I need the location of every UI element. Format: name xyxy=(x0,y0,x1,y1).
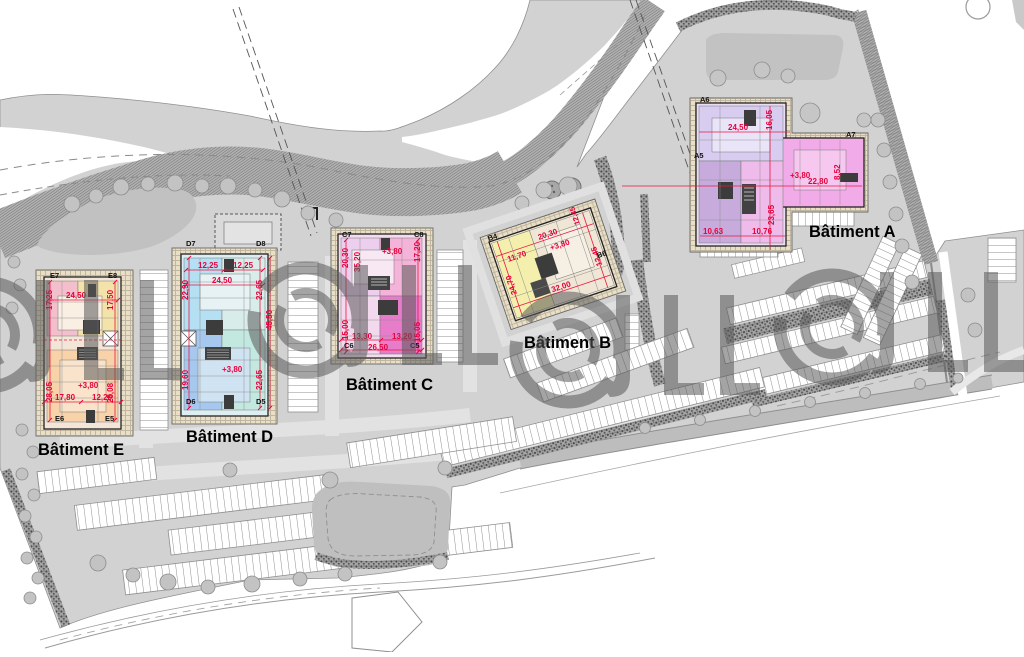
svg-text:+3,80: +3,80 xyxy=(790,171,811,180)
svg-text:D5: D5 xyxy=(256,397,266,406)
svg-text:C7: C7 xyxy=(342,230,352,239)
svg-text:24,50: 24,50 xyxy=(728,123,749,132)
svg-text:24,50: 24,50 xyxy=(212,276,233,285)
svg-text:22,80: 22,80 xyxy=(808,177,829,186)
svg-text:28,05: 28,05 xyxy=(45,381,54,402)
svg-text:22,65: 22,65 xyxy=(255,369,264,390)
svg-text:C8: C8 xyxy=(414,230,424,239)
svg-text:E5: E5 xyxy=(105,414,114,423)
svg-text:8,52: 8,52 xyxy=(833,164,842,180)
svg-text:Bâtiment C: Bâtiment C xyxy=(346,376,433,394)
svg-text:17,50: 17,50 xyxy=(106,289,115,310)
svg-text:24,50: 24,50 xyxy=(66,291,87,300)
svg-text:E8: E8 xyxy=(108,271,117,280)
svg-text:20,30: 20,30 xyxy=(341,247,350,268)
svg-text:Bâtiment D: Bâtiment D xyxy=(186,428,273,446)
svg-text:Bâtiment E: Bâtiment E xyxy=(38,441,124,459)
svg-text:16,05: 16,05 xyxy=(765,109,774,130)
svg-text:+3,80: +3,80 xyxy=(78,381,99,390)
svg-text:12,25: 12,25 xyxy=(233,261,254,270)
svg-text:A7: A7 xyxy=(846,130,856,139)
svg-text:22,90: 22,90 xyxy=(181,279,190,300)
svg-text:26,50: 26,50 xyxy=(368,343,389,352)
svg-text:12,20: 12,20 xyxy=(92,393,113,402)
svg-text:10,76: 10,76 xyxy=(752,227,773,236)
svg-text:A6: A6 xyxy=(700,95,710,104)
svg-text:+3,80: +3,80 xyxy=(382,247,403,256)
svg-text:A5: A5 xyxy=(694,151,704,160)
svg-text:23,65: 23,65 xyxy=(767,204,776,225)
svg-text:12,25: 12,25 xyxy=(198,261,219,270)
svg-text:Bâtiment A: Bâtiment A xyxy=(809,223,896,241)
svg-text:17,20: 17,20 xyxy=(413,241,422,262)
svg-text:D7: D7 xyxy=(186,239,196,248)
svg-text:D8: D8 xyxy=(256,239,266,248)
svg-text:10,63: 10,63 xyxy=(703,227,724,236)
svg-text:15,00: 15,00 xyxy=(341,319,350,340)
svg-text:E7: E7 xyxy=(50,271,59,280)
svg-text:19,60: 19,60 xyxy=(181,369,190,390)
svg-text:D6: D6 xyxy=(186,397,196,406)
svg-text:17,80: 17,80 xyxy=(55,393,76,402)
svg-text:45,50: 45,50 xyxy=(265,309,274,330)
svg-text:E6: E6 xyxy=(55,414,64,423)
svg-text:+3,80: +3,80 xyxy=(222,365,243,374)
